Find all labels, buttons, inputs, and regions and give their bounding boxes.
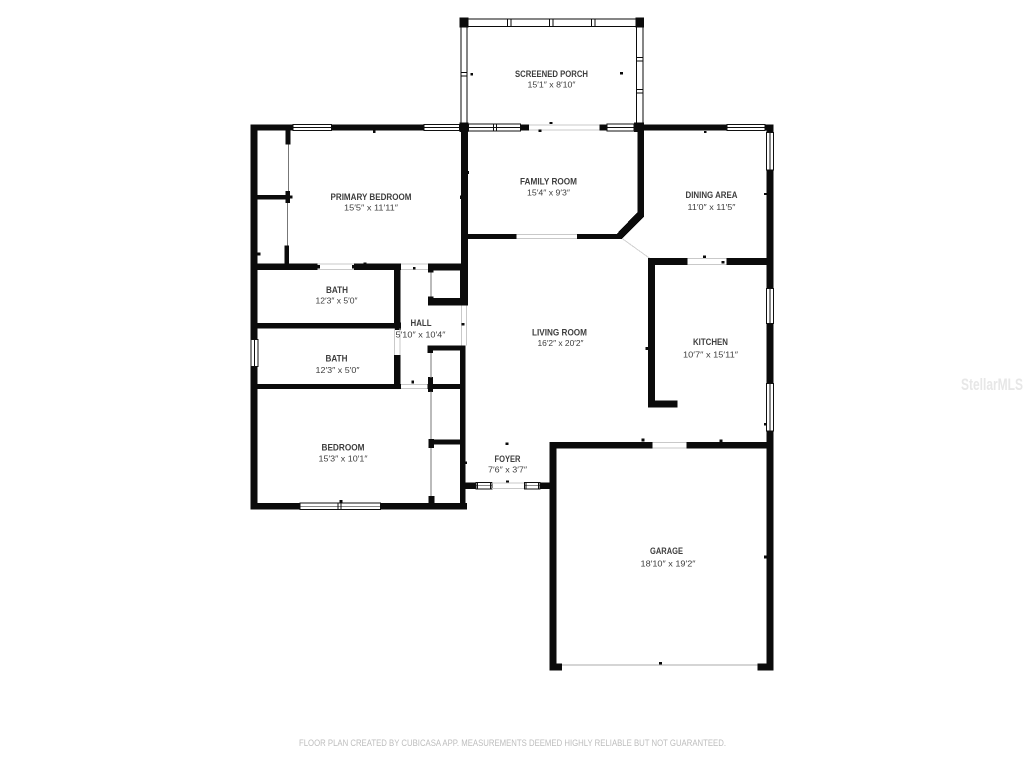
svg-text:12′3″ x 5′0″: 12′3″ x 5′0″	[316, 296, 358, 306]
svg-text:15′1″ x 8′10″: 15′1″ x 8′10″	[528, 80, 576, 90]
svg-text:FAMILY ROOM: FAMILY ROOM	[520, 177, 577, 188]
svg-text:PRIMARY BEDROOM: PRIMARY BEDROOM	[331, 192, 412, 203]
svg-text:FOYER: FOYER	[495, 454, 521, 465]
svg-text:10′7″ x 15′11″: 10′7″ x 15′11″	[683, 350, 738, 360]
svg-text:15′4″ x 9′3″: 15′4″ x 9′3″	[527, 188, 570, 198]
svg-text:BATH: BATH	[326, 285, 348, 296]
svg-text:HALL: HALL	[411, 318, 432, 329]
svg-text:FLOOR PLAN CREATED BY CUBICASA: FLOOR PLAN CREATED BY CUBICASA APP. MEAS…	[299, 738, 726, 748]
svg-text:SCREENED PORCH: SCREENED PORCH	[515, 69, 588, 80]
svg-text:7′6″ x 3′7″: 7′6″ x 3′7″	[488, 465, 527, 475]
svg-text:BEDROOM: BEDROOM	[322, 443, 365, 454]
svg-text:18′10″ x 19′2″: 18′10″ x 19′2″	[641, 559, 696, 569]
svg-text:GARAGE: GARAGE	[650, 546, 683, 557]
svg-text:DINING AREA: DINING AREA	[686, 190, 738, 201]
svg-text:BATH: BATH	[326, 354, 348, 365]
svg-text:16′2″ x 20′2″: 16′2″ x 20′2″	[538, 338, 584, 348]
svg-text:StellarMLS: StellarMLS	[961, 376, 1023, 394]
svg-text:5′10″ x 10′4″: 5′10″ x 10′4″	[396, 330, 446, 340]
svg-text:11′0″ x 11′5″: 11′0″ x 11′5″	[688, 202, 736, 212]
svg-text:12′3″ x 5′0″: 12′3″ x 5′0″	[316, 365, 360, 375]
svg-text:KITCHEN: KITCHEN	[693, 337, 728, 348]
svg-text:15′3″ x 10′1″: 15′3″ x 10′1″	[319, 454, 368, 464]
svg-text:LIVING ROOM: LIVING ROOM	[532, 328, 587, 339]
svg-text:15′5″ x 11′11″: 15′5″ x 11′11″	[344, 203, 398, 213]
